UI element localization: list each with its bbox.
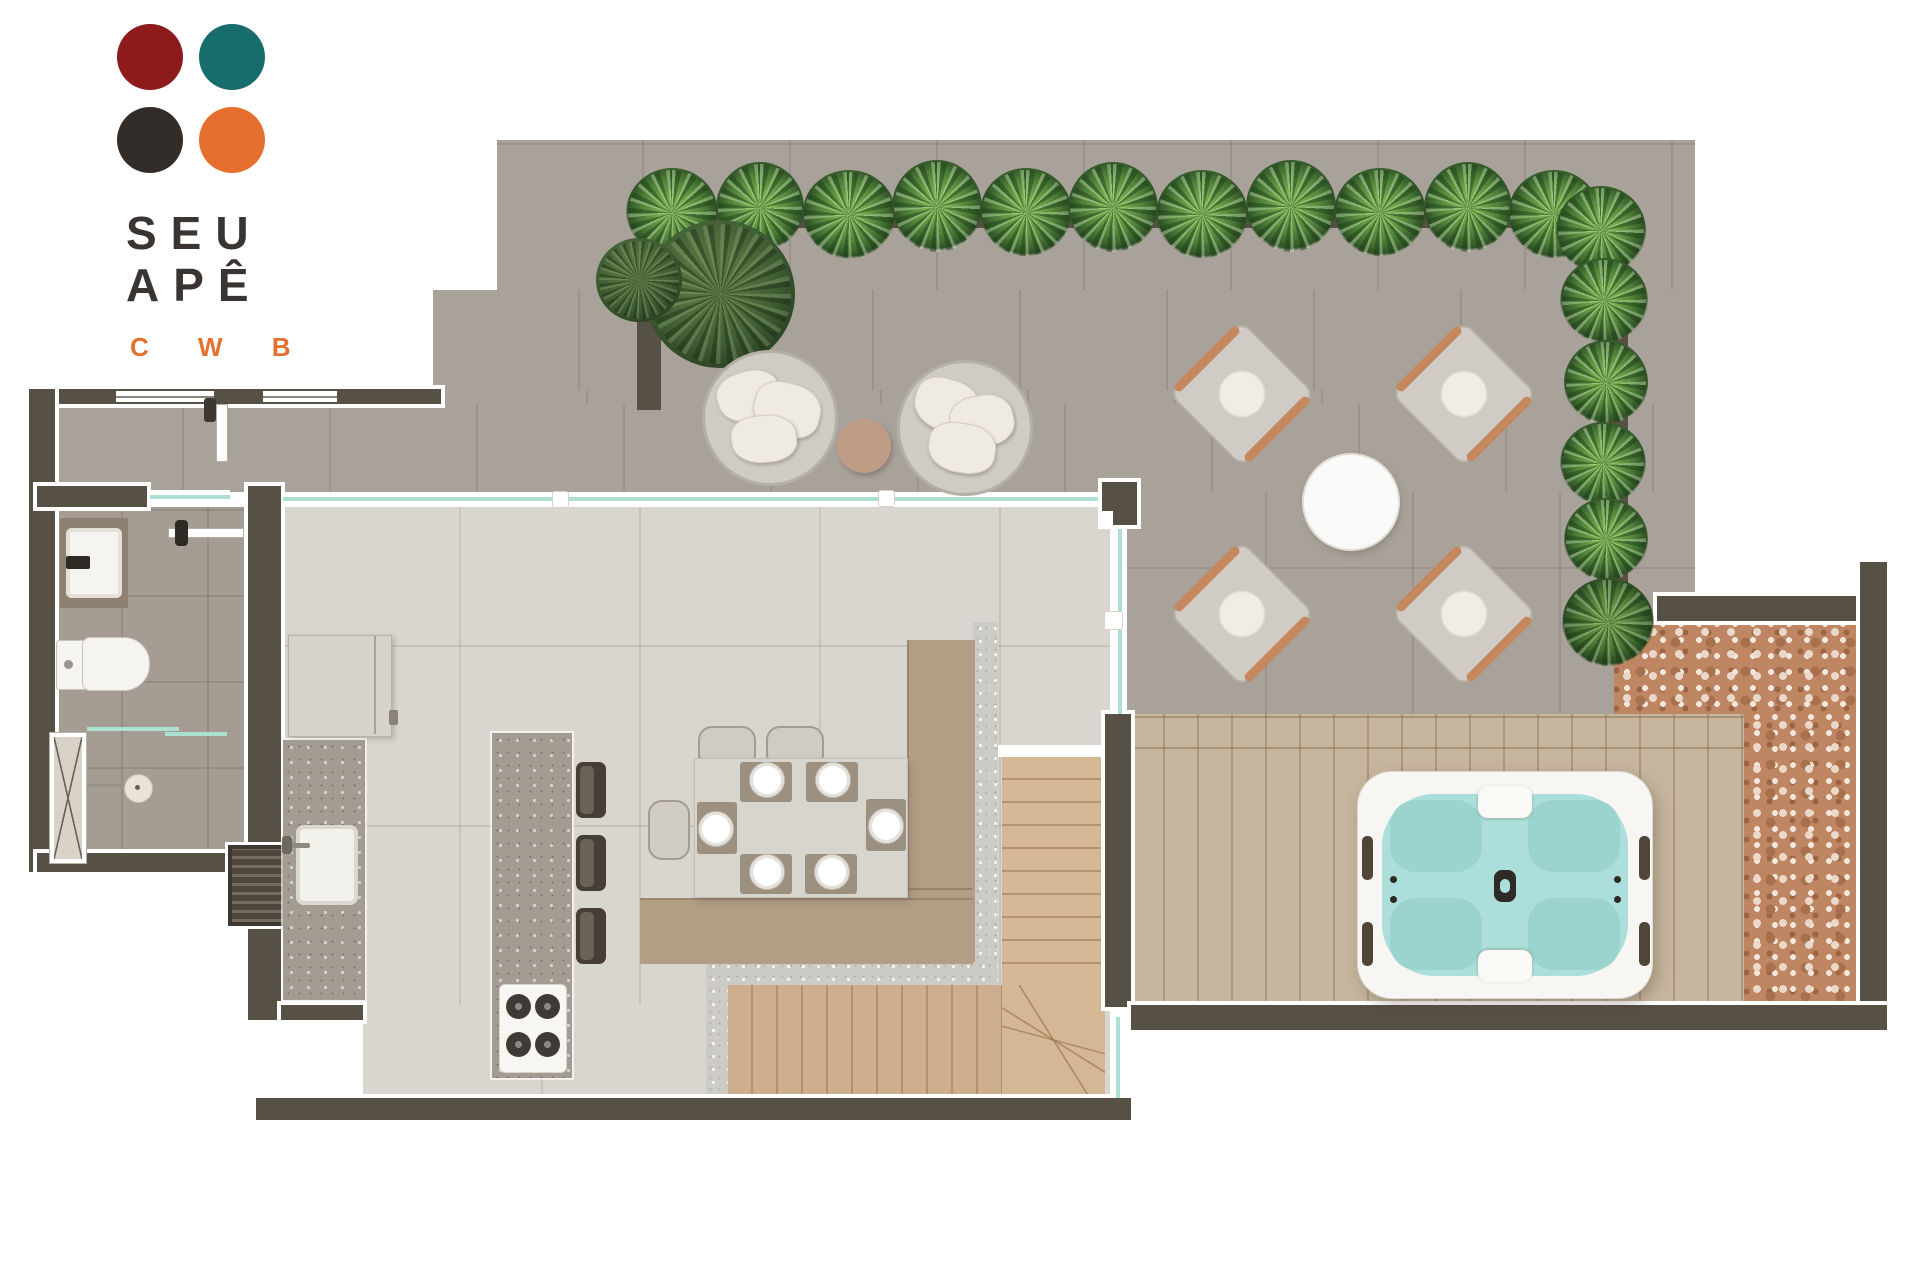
right-outer-wall <box>1860 562 1887 1030</box>
cooktop-burner-1 <box>506 994 531 1019</box>
plant-right-1 <box>1560 258 1648 344</box>
hot-tub-headrest-bottom <box>1478 950 1532 982</box>
toilet-bowl <box>82 637 150 691</box>
bathroom-kitchen-wall <box>248 486 281 1020</box>
hot-tub-seat-3 <box>1390 898 1482 970</box>
shower-glass-1 <box>87 727 179 731</box>
glass-connector-1 <box>552 491 569 508</box>
plate-bottom-1 <box>749 854 785 890</box>
island-stool-2 <box>576 835 606 891</box>
kitchen-step-wall <box>281 1005 363 1020</box>
service-shaft <box>50 733 86 863</box>
plant-right-2 <box>1564 340 1648 426</box>
plate-top-2 <box>815 762 851 798</box>
plant-10 <box>1424 162 1512 254</box>
dining-chair-left <box>648 800 690 860</box>
plant-8 <box>1246 160 1336 254</box>
entry-window-1 <box>116 391 214 402</box>
refrigerator-door-seam <box>374 636 376 734</box>
dining-bench-horizontal <box>640 898 973 964</box>
bench-seam <box>908 888 972 890</box>
plant-right-3 <box>1560 422 1646 506</box>
entry-door-handle <box>204 398 216 422</box>
stairs-lower-flight <box>728 985 1002 1095</box>
floorplan-page: { "logo": { "line1": "SEU", "line2": "AP… <box>0 0 1920 1287</box>
plate-top-1 <box>749 762 785 798</box>
lounge-chair-2 <box>897 360 1033 496</box>
deck-bottom-wall <box>1131 1005 1887 1030</box>
hot-tub-handle-right-1 <box>1639 836 1650 880</box>
entry-door-leaf <box>216 404 228 462</box>
bathroom-top-wall <box>37 486 147 507</box>
hot-tub-handle-right-2 <box>1639 922 1650 966</box>
plant-right-4 <box>1564 498 1648 582</box>
hot-tub-jet-4 <box>1614 896 1621 903</box>
plant-9 <box>1334 168 1426 258</box>
brand-logo: SEU APÊ C W B <box>0 0 360 380</box>
logo-tagline: C W B <box>130 332 312 363</box>
plant-5 <box>980 168 1072 258</box>
bottom-wall <box>256 1098 1131 1120</box>
plant-3 <box>802 170 896 260</box>
toilet-flush-button <box>64 660 73 669</box>
island-stool-3 <box>576 908 606 964</box>
bathroom-sliding-door-glass <box>150 490 230 504</box>
hot-tub-seat-1 <box>1390 800 1482 872</box>
stair-pony-wall-vertical <box>973 622 998 985</box>
bathroom-door-handle <box>175 520 188 546</box>
cooktop-burner-4 <box>535 1032 560 1057</box>
logo-text-line1: SEU <box>126 206 263 260</box>
hot-tub-control-dot <box>1500 879 1510 893</box>
stair-pony-wall-left <box>706 985 728 1098</box>
pebble-garden-right <box>1744 714 1860 1005</box>
plant-palm-pebbles <box>1562 578 1654 668</box>
stairs-top-edge <box>995 745 1110 757</box>
plate-left <box>698 811 734 847</box>
hot-tub-handle-left-1 <box>1362 836 1373 880</box>
island-stool-1 <box>576 762 606 818</box>
cooktop-burner-3 <box>506 1032 531 1057</box>
lounge-side-table <box>837 419 891 473</box>
kitchen-faucet-handle <box>282 836 292 854</box>
outdoor-coffee-table <box>1304 455 1398 549</box>
pebble-top-wall <box>1657 596 1860 621</box>
plate-bottom-2 <box>814 854 850 890</box>
hot-tub-seat-4 <box>1528 898 1620 970</box>
shrub-small <box>596 238 682 322</box>
hot-tub-control <box>1494 870 1516 902</box>
logo-dot-red <box>117 24 183 90</box>
glass-connector-2 <box>878 490 895 507</box>
plant-7 <box>1156 170 1248 260</box>
hot-tub-handle-left-2 <box>1362 922 1373 966</box>
glass-corner-post-notch <box>1102 511 1113 525</box>
vanity-faucet <box>66 556 90 569</box>
logo-text-line2: APÊ <box>126 258 263 312</box>
hot-tub-headrest-top <box>1478 786 1532 818</box>
hot-tub-jet-2 <box>1390 896 1397 903</box>
stairs-winder <box>1002 985 1105 1095</box>
refrigerator <box>288 635 392 737</box>
plant-4 <box>892 160 982 254</box>
plate-right <box>868 808 904 844</box>
shower-glass-2 <box>165 732 227 736</box>
refrigerator-handle <box>389 710 398 725</box>
glass-connector-3 <box>1104 611 1123 630</box>
dining-table <box>695 759 907 897</box>
logo-dot-teal <box>199 24 265 90</box>
lounge-chair-1-pillow-c <box>729 412 800 467</box>
entry-top-wall <box>37 389 441 404</box>
hot-tub-jet-1 <box>1390 876 1397 883</box>
cooktop-burner-2 <box>535 994 560 1019</box>
shower-arm <box>87 784 127 787</box>
stair-glass-segment <box>1110 1017 1126 1098</box>
kitchen-sink <box>296 825 358 905</box>
stairs-right-wall <box>1105 714 1131 1007</box>
hot-tub-seat-2 <box>1528 800 1620 872</box>
entry-window-2 <box>263 391 337 402</box>
lounge-chair-1 <box>702 350 838 486</box>
shower-drain-center <box>135 785 140 790</box>
stairs-upper-flight <box>1002 757 1105 985</box>
plant-6 <box>1068 162 1158 254</box>
logo-dot-orange <box>199 107 265 173</box>
logo-dot-dark <box>117 107 183 173</box>
hot-tub-jet-3 <box>1614 876 1621 883</box>
